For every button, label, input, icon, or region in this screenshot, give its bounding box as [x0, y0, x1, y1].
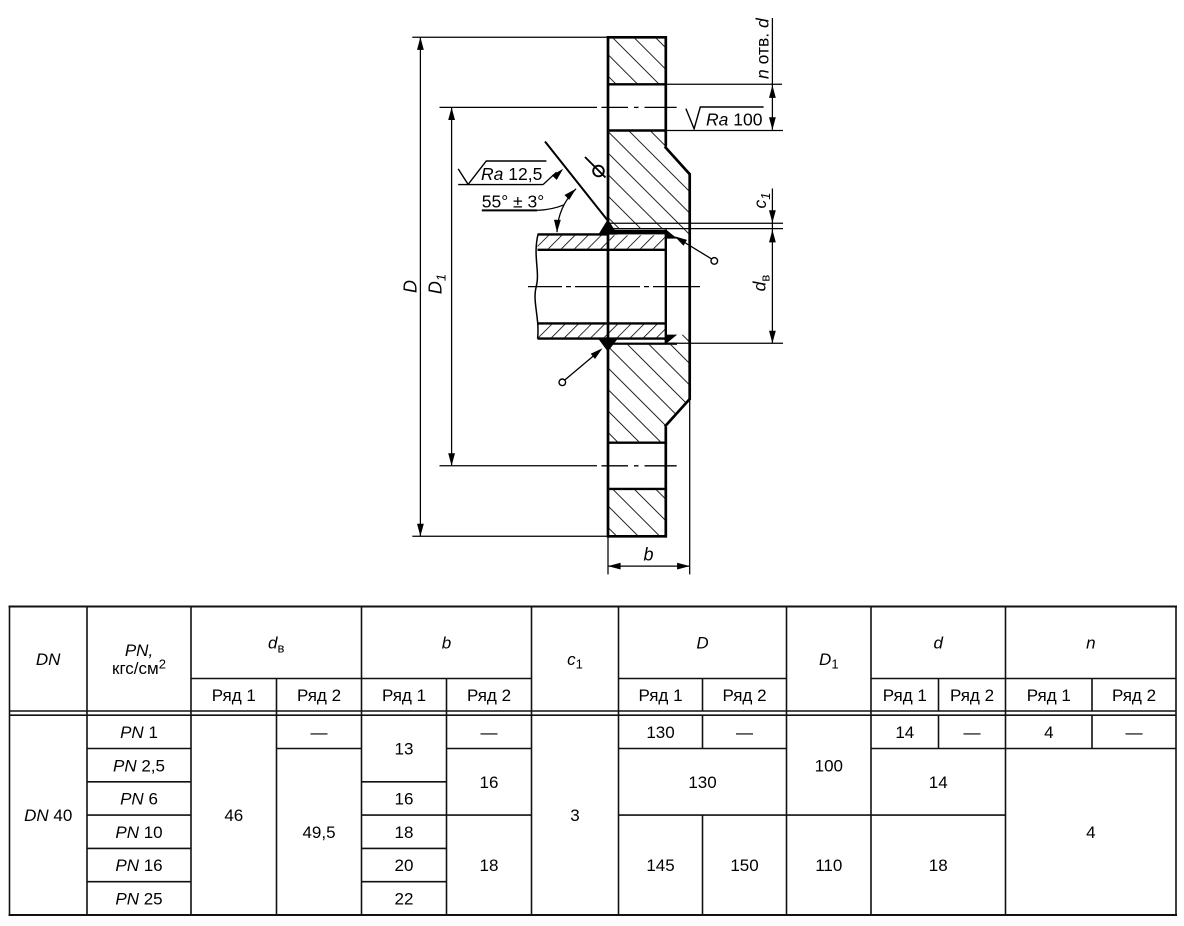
- svg-text:Ряд 2: Ряд 2: [1112, 686, 1156, 705]
- svg-text:18: 18: [395, 823, 414, 842]
- svg-text:d: d: [933, 634, 943, 653]
- svg-text:Ряд 2: Ряд 2: [467, 686, 511, 705]
- svg-text:18: 18: [929, 856, 948, 875]
- svg-text:DN 40: DN 40: [24, 806, 72, 825]
- svg-text:—: —: [1126, 723, 1143, 742]
- svg-text:n отв. d: n отв. d: [753, 17, 773, 79]
- svg-text:PN 2,5: PN 2,5: [113, 756, 165, 775]
- svg-text:b: b: [643, 545, 653, 565]
- svg-text:Ряд 1: Ряд 1: [382, 686, 426, 705]
- svg-text:Ряд 2: Ряд 2: [950, 686, 994, 705]
- svg-text:D: D: [401, 280, 421, 293]
- svg-text:Ra 12,5: Ra 12,5: [481, 164, 542, 184]
- svg-text:Ra 100: Ra 100: [706, 110, 763, 130]
- svg-text:13: 13: [395, 740, 414, 759]
- svg-text:20: 20: [395, 856, 414, 875]
- svg-text:кгс/см2: кгс/см2: [112, 656, 166, 678]
- svg-text:Ряд 2: Ряд 2: [722, 686, 766, 705]
- svg-text:—: —: [736, 723, 753, 742]
- svg-text:DN: DN: [36, 650, 61, 669]
- svg-text:PN 1: PN 1: [120, 723, 158, 742]
- svg-text:Ряд 1: Ряд 1: [638, 686, 682, 705]
- svg-text:—: —: [311, 723, 328, 742]
- svg-text:150: 150: [730, 856, 758, 875]
- svg-text:b: b: [442, 634, 451, 653]
- svg-text:130: 130: [646, 723, 674, 742]
- svg-text:14: 14: [895, 723, 914, 742]
- svg-text:PN 16: PN 16: [115, 856, 162, 875]
- svg-text:PN 10: PN 10: [115, 823, 162, 842]
- svg-text:145: 145: [646, 856, 674, 875]
- svg-text:22: 22: [395, 890, 414, 909]
- svg-text:100: 100: [815, 756, 843, 775]
- svg-text:3: 3: [570, 806, 579, 825]
- svg-text:Ряд 1: Ряд 1: [212, 686, 256, 705]
- svg-text:18: 18: [480, 856, 499, 875]
- svg-text:16: 16: [395, 790, 414, 809]
- svg-text:PN 6: PN 6: [120, 790, 158, 809]
- svg-text:Ряд 1: Ряд 1: [1027, 686, 1071, 705]
- svg-text:Ряд 1: Ряд 1: [883, 686, 927, 705]
- svg-text:D: D: [696, 634, 708, 653]
- svg-text:n: n: [1086, 634, 1095, 653]
- svg-text:PN,: PN,: [125, 641, 153, 660]
- svg-text:4: 4: [1086, 823, 1095, 842]
- svg-text:4: 4: [1044, 723, 1053, 742]
- svg-text:46: 46: [224, 806, 243, 825]
- svg-text:110: 110: [815, 856, 842, 875]
- svg-text:49,5: 49,5: [302, 823, 335, 842]
- svg-text:55° ± 3°: 55° ± 3°: [482, 192, 545, 212]
- svg-text:—: —: [964, 723, 981, 742]
- svg-text:—: —: [481, 723, 498, 742]
- svg-text:PN 25: PN 25: [115, 890, 162, 909]
- svg-text:Ряд 2: Ряд 2: [297, 686, 341, 705]
- svg-text:130: 130: [688, 773, 716, 792]
- svg-text:16: 16: [480, 773, 499, 792]
- svg-text:14: 14: [929, 773, 948, 792]
